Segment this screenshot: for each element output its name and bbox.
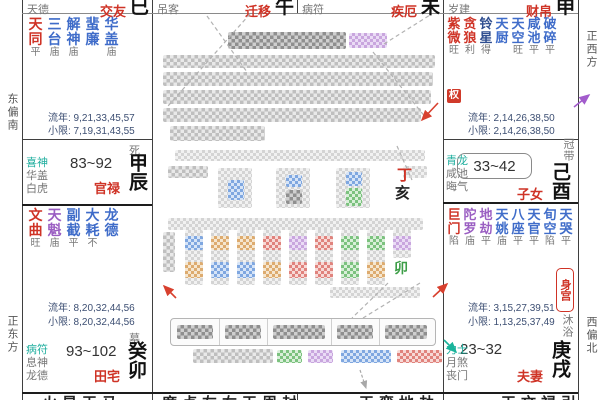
- redacted-block: [168, 166, 208, 178]
- xiaoxian-text: 小限: 8,20,32,44,56: [48, 313, 135, 328]
- star-八座: 八座平: [510, 208, 526, 248]
- toolbar-button[interactable]: [337, 325, 373, 339]
- redacted-block: [289, 236, 307, 250]
- star-陀罗: 陀罗庙: [462, 208, 478, 248]
- redacted-block: [163, 108, 421, 122]
- redacted-block: [367, 236, 385, 250]
- star-咸池: 咸池平: [526, 17, 542, 57]
- redacted-block: [175, 150, 425, 161]
- body-palace-badge: 身宫: [556, 268, 574, 312]
- god-label: 息神: [26, 357, 48, 369]
- star-龙德: 龙德: [102, 208, 121, 250]
- liunian-text: 流年: 3,15,27,39,51: [468, 299, 555, 314]
- redacted-block: [185, 236, 203, 250]
- redacted-block: [308, 350, 333, 363]
- branch-label: 巳: [130, 0, 149, 16]
- star-天魁: 天魁庙: [45, 208, 64, 250]
- palace-jie-wei[interactable]: 病符 疾厄 未: [298, 0, 443, 14]
- palace-guanlu-chen[interactable]: 死 甲辰 83~92 官禄 喜神 华盖 白虎: [23, 140, 152, 204]
- liunian-text: 流年: 8,20,32,44,56: [48, 299, 135, 314]
- redacted-block: [168, 218, 423, 230]
- redacted-block: [163, 72, 433, 86]
- palace-tianzhai-mao[interactable]: 文曲旺天魁庙副截平大耗不龙德 流年: 8,20,32,44,56 小限: 8,2…: [23, 206, 152, 392]
- god-label: 天德: [27, 0, 49, 17]
- redacted-block: [163, 232, 175, 272]
- god-label: 月煞: [446, 357, 468, 369]
- palace-name: 夫妻: [517, 366, 543, 385]
- star-list: 天同平三台庙解神庙蜚廉华盖庙: [26, 17, 121, 59]
- god-label: 白虎: [26, 183, 48, 195]
- redacted-block: [228, 180, 244, 200]
- toolbar-button[interactable]: [273, 325, 325, 339]
- redacted-block: [237, 262, 255, 278]
- partial-star-text: 廉贞左右天周封月: [162, 394, 296, 400]
- redacted-block: [315, 236, 333, 250]
- star-天姚: 天姚庙: [494, 208, 510, 248]
- palace-qianyi-wu[interactable]: 吊客 迁移 午: [153, 0, 297, 14]
- ganzhi-label: 庚戌: [549, 340, 569, 378]
- redacted-block: [397, 350, 442, 363]
- ganzhi-label: 癸卯: [125, 341, 145, 379]
- redacted-block: [185, 262, 203, 278]
- branch-label: 申: [556, 0, 575, 16]
- partial-star-text: 天文禄引: [501, 394, 578, 400]
- redacted-block: [263, 262, 281, 278]
- redacted-block: [163, 90, 431, 104]
- palace-zinv-you[interactable]: 冠带 己酉 33~42 子女 青龙 咸池 晦气: [444, 140, 578, 202]
- god-label: 丧门: [446, 370, 468, 382]
- palace-jiaoyou-si[interactable]: 天德 交友 巳 天同平三台庙解神庙蜚廉华盖庙 流年: 9,21,33,45,57…: [23, 0, 152, 139]
- star-贪狼: 贪狼利: [462, 17, 478, 57]
- redacted-block: [170, 126, 265, 141]
- grid-line: [297, 393, 298, 400]
- redacted-block: [289, 262, 307, 278]
- star-旬空: 旬空陷: [542, 208, 558, 248]
- redacted-block: [393, 236, 411, 250]
- palace-header: 病符 疾厄 未: [298, 0, 443, 14]
- palace-header: 吊客 迁移 午: [153, 0, 297, 14]
- ganzhi-label: 己酉: [549, 162, 569, 200]
- palace-caibo-shen[interactable]: 岁建 财帛 申 紫微旺贪狼利铃星得天厨天空旺咸池平破碎平 权 流年: 2,14,…: [444, 0, 578, 139]
- palace-name: 田宅: [94, 366, 120, 385]
- redacted-block: [315, 262, 333, 278]
- star-list: 巨门陷陀罗庙地劫平天姚庙八座平天官平旬空陷天哭平: [446, 208, 574, 248]
- toolbar-divider: [331, 319, 332, 345]
- toolbar-divider: [379, 319, 380, 345]
- partial-star-text: 天鸾地劫: [359, 394, 439, 400]
- redacted-block: [341, 350, 391, 363]
- star-破碎: 破碎平: [542, 17, 558, 57]
- star-紫微: 紫微旺: [446, 17, 462, 57]
- redacted-block: [286, 190, 302, 204]
- age-range: 93~102: [66, 343, 116, 360]
- toolbar-button[interactable]: [225, 325, 261, 339]
- palace-fuqi-xu[interactable]: 巨门陷陀罗庙地劫平天姚庙八座平天官平旬空陷天哭平 身宫 流年: 3,15,27,…: [444, 204, 578, 392]
- redacted-block: [237, 236, 255, 250]
- redacted-block: [211, 262, 229, 278]
- palace-header: 岁建 财帛 申: [444, 0, 578, 14]
- star-大耗: 大耗不: [83, 208, 102, 250]
- age-range: 33~42: [473, 158, 515, 175]
- god-label: 岁建: [448, 0, 470, 17]
- palace-name: 子女: [517, 184, 543, 203]
- redacted-block: [346, 172, 362, 186]
- stage-label: 冠带: [560, 138, 576, 162]
- stage-label: 沐浴: [559, 314, 575, 338]
- god-label: 力士: [446, 344, 468, 356]
- star-解神: 解神庙: [64, 17, 83, 59]
- god-label: 病符: [26, 344, 48, 356]
- god-label: 青龙: [446, 155, 468, 167]
- hour-branch-char: 亥: [395, 182, 410, 203]
- star-list: 文曲旺天魁庙副截平大耗不龙德: [26, 208, 121, 250]
- palace-bottom-cutoff[interactable]: 天文禄引: [445, 394, 578, 400]
- redacted-block: [277, 350, 302, 363]
- redacted-block: [286, 175, 302, 187]
- toolbar-button[interactable]: [385, 325, 427, 339]
- direction-label: 正东方: [4, 315, 20, 354]
- xiaoxian-text: 小限: 7,19,31,43,55: [48, 122, 135, 137]
- redacted-block: [163, 55, 435, 68]
- age-range-box[interactable]: 33~42: [457, 153, 532, 179]
- ganzhi-label: 甲辰: [126, 153, 146, 191]
- grid-line: [578, 0, 579, 400]
- god-label: 喜神: [26, 157, 48, 169]
- partial-star-text: 火星天马: [42, 394, 122, 400]
- age-range: 83~92: [70, 155, 112, 172]
- xiaoxian-text: 小限: 1,13,25,37,49: [468, 313, 555, 328]
- toolbar-button[interactable]: [177, 325, 213, 339]
- star-天官: 天官平: [526, 208, 542, 248]
- redacted-block: [263, 236, 281, 250]
- palace-name: 官禄: [94, 178, 120, 197]
- star-地劫: 地劫平: [478, 208, 494, 248]
- direction-label: 东偏南: [4, 93, 20, 132]
- star-副截: 副截平: [64, 208, 83, 250]
- direction-label: 西偏北: [583, 316, 599, 355]
- center-toolbar: [170, 318, 436, 346]
- star-天同: 天同平: [26, 17, 45, 59]
- day-branch-char: 卯: [394, 258, 408, 278]
- redacted-block: [341, 236, 359, 250]
- star-铃星: 铃星得: [478, 17, 494, 57]
- toolbar-divider: [267, 319, 268, 345]
- god-label: 晦气: [446, 181, 468, 193]
- star-蜚廉: 蜚廉: [83, 17, 102, 59]
- redacted-block: [349, 33, 387, 48]
- god-label: 咸池: [446, 168, 468, 180]
- palace-header: 天德 交友 巳: [23, 0, 152, 14]
- direction-label: 正西方: [583, 30, 599, 69]
- redacted-block: [367, 262, 385, 278]
- redacted-block: [193, 349, 273, 363]
- star-天空: 天空旺: [510, 17, 526, 57]
- star-巨门: 巨门陷: [446, 208, 462, 248]
- ziwei-chart: 东偏南 正东方 正西方 西偏北 天德 交友 巳 天同平三台庙解神庙蜚廉华盖庙 流…: [0, 0, 600, 400]
- star-三台: 三台庙: [45, 17, 64, 59]
- redacted-block: [211, 236, 229, 250]
- star-天哭: 天哭平: [558, 208, 574, 248]
- redacted-block: [330, 287, 420, 298]
- redacted-block: [346, 188, 362, 206]
- star-文曲: 文曲旺: [26, 208, 45, 250]
- star-list: 紫微旺贪狼利铃星得天厨天空旺咸池平破碎平: [446, 17, 558, 57]
- palace-bottom-cutoff[interactable]: 廉贞左右天周封月: [154, 394, 296, 400]
- xiaoxian-text: 小限: 2,14,26,38,50: [468, 122, 555, 137]
- hua-quan-badge: 权: [447, 89, 461, 103]
- god-label: 龙德: [26, 370, 48, 382]
- redacted-block: [341, 262, 359, 278]
- toolbar-divider: [219, 319, 220, 345]
- palace-bottom-cutoff[interactable]: 天鸾地劫: [299, 394, 442, 400]
- star-天厨: 天厨: [494, 17, 510, 57]
- palace-bottom-cutoff[interactable]: 火星天马: [23, 394, 151, 400]
- star-华盖: 华盖庙: [102, 17, 121, 59]
- redacted-block: [228, 32, 346, 49]
- god-label: 华盖: [26, 170, 48, 182]
